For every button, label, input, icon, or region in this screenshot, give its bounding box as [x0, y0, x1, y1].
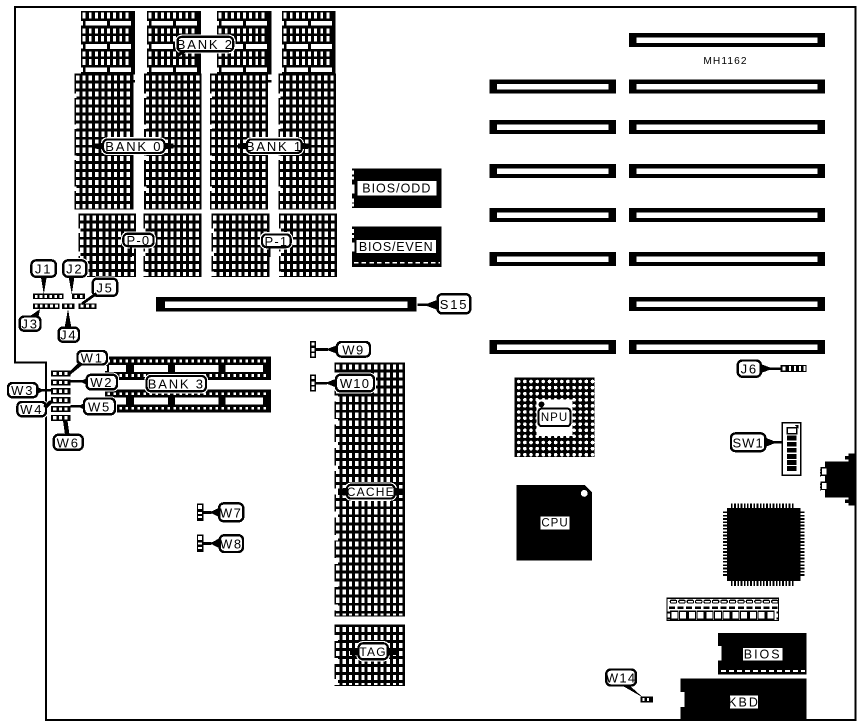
svg-text:W2: W2 — [90, 375, 113, 390]
svg-text:BIOS/ODD: BIOS/ODD — [362, 182, 431, 196]
svg-text:W6: W6 — [57, 435, 80, 450]
svg-text:W1: W1 — [81, 351, 104, 366]
svg-text:W10: W10 — [340, 376, 370, 391]
svg-text:TAG: TAG — [359, 645, 386, 659]
svg-text:J1: J1 — [35, 262, 52, 277]
svg-text:CPU: CPU — [541, 518, 568, 530]
svg-text:P-1: P-1 — [264, 234, 288, 249]
svg-text:KBD: KBD — [728, 695, 760, 709]
svg-text:J2: J2 — [66, 262, 83, 277]
svg-text:W14: W14 — [606, 671, 636, 686]
svg-text:SW1: SW1 — [733, 435, 764, 450]
svg-text:BANK 1: BANK 1 — [246, 139, 303, 154]
svg-text:BANK 0: BANK 0 — [105, 139, 162, 154]
svg-text:BIOS/EVEN: BIOS/EVEN — [359, 240, 434, 254]
svg-text:W9: W9 — [342, 342, 365, 357]
svg-text:CACHE: CACHE — [347, 485, 395, 499]
svg-text:J5: J5 — [96, 280, 113, 295]
svg-text:W4: W4 — [20, 402, 43, 417]
svg-text:W3: W3 — [11, 383, 34, 398]
svg-text:BANK 3: BANK 3 — [148, 377, 205, 392]
svg-text:NPU: NPU — [541, 412, 568, 424]
svg-text:S15: S15 — [440, 297, 469, 312]
svg-text:W5: W5 — [88, 399, 111, 414]
svg-text:W8: W8 — [220, 537, 243, 552]
svg-text:MH1162: MH1162 — [703, 56, 747, 67]
svg-text:J3: J3 — [21, 317, 38, 332]
svg-text:P-0: P-0 — [126, 233, 150, 248]
svg-text:J6: J6 — [741, 362, 758, 377]
svg-text:BIOS: BIOS — [744, 648, 782, 662]
svg-text:W7: W7 — [220, 505, 243, 520]
svg-text:J4: J4 — [60, 328, 77, 343]
svg-text:BANK 2: BANK 2 — [177, 37, 234, 52]
